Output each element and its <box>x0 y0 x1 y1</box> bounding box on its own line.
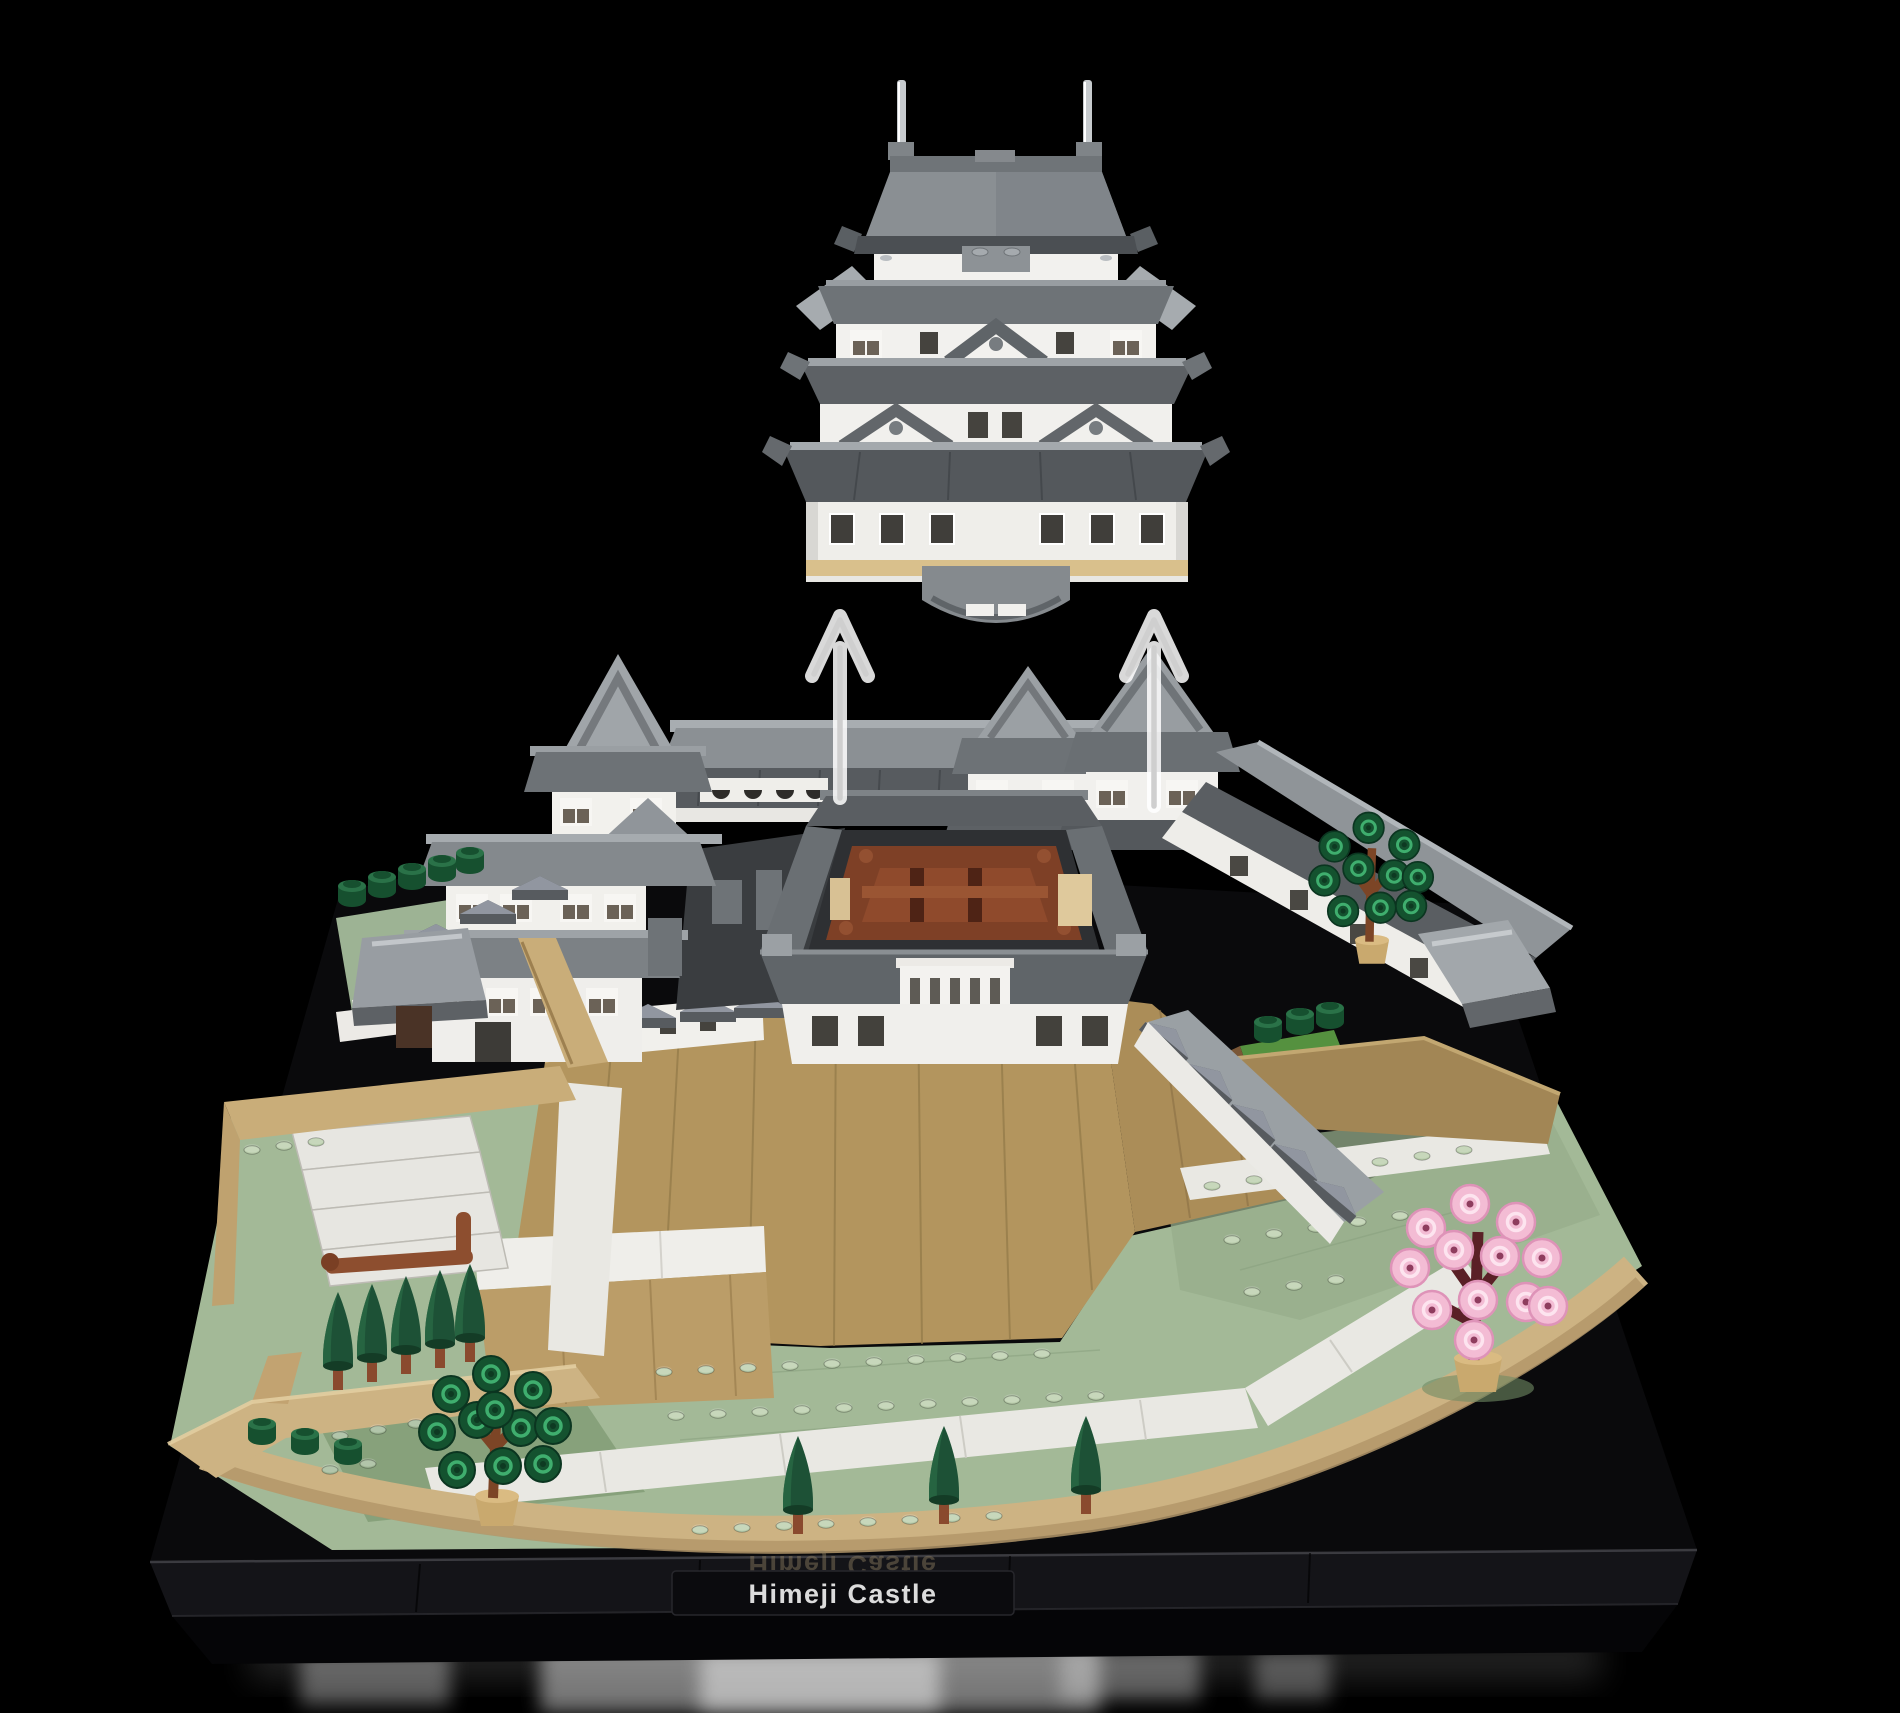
keep-base-wall <box>806 502 1188 623</box>
west-tower-gable <box>560 654 678 758</box>
keep-top-roof <box>834 172 1158 254</box>
keep-tier2 <box>796 266 1196 364</box>
shachihoko-ornament-icon <box>888 80 1102 160</box>
keep-socket-brown-frame <box>826 846 1092 940</box>
keep-socket-ring <box>760 790 1148 1064</box>
keep-tier3 <box>780 352 1212 448</box>
product-image: Himeji Castle Himeji Castle <box>0 0 1900 1713</box>
keep-tier4 <box>762 436 1230 502</box>
nameplate-text: Himeji Castle <box>748 1579 937 1609</box>
main-keep <box>762 80 1230 623</box>
